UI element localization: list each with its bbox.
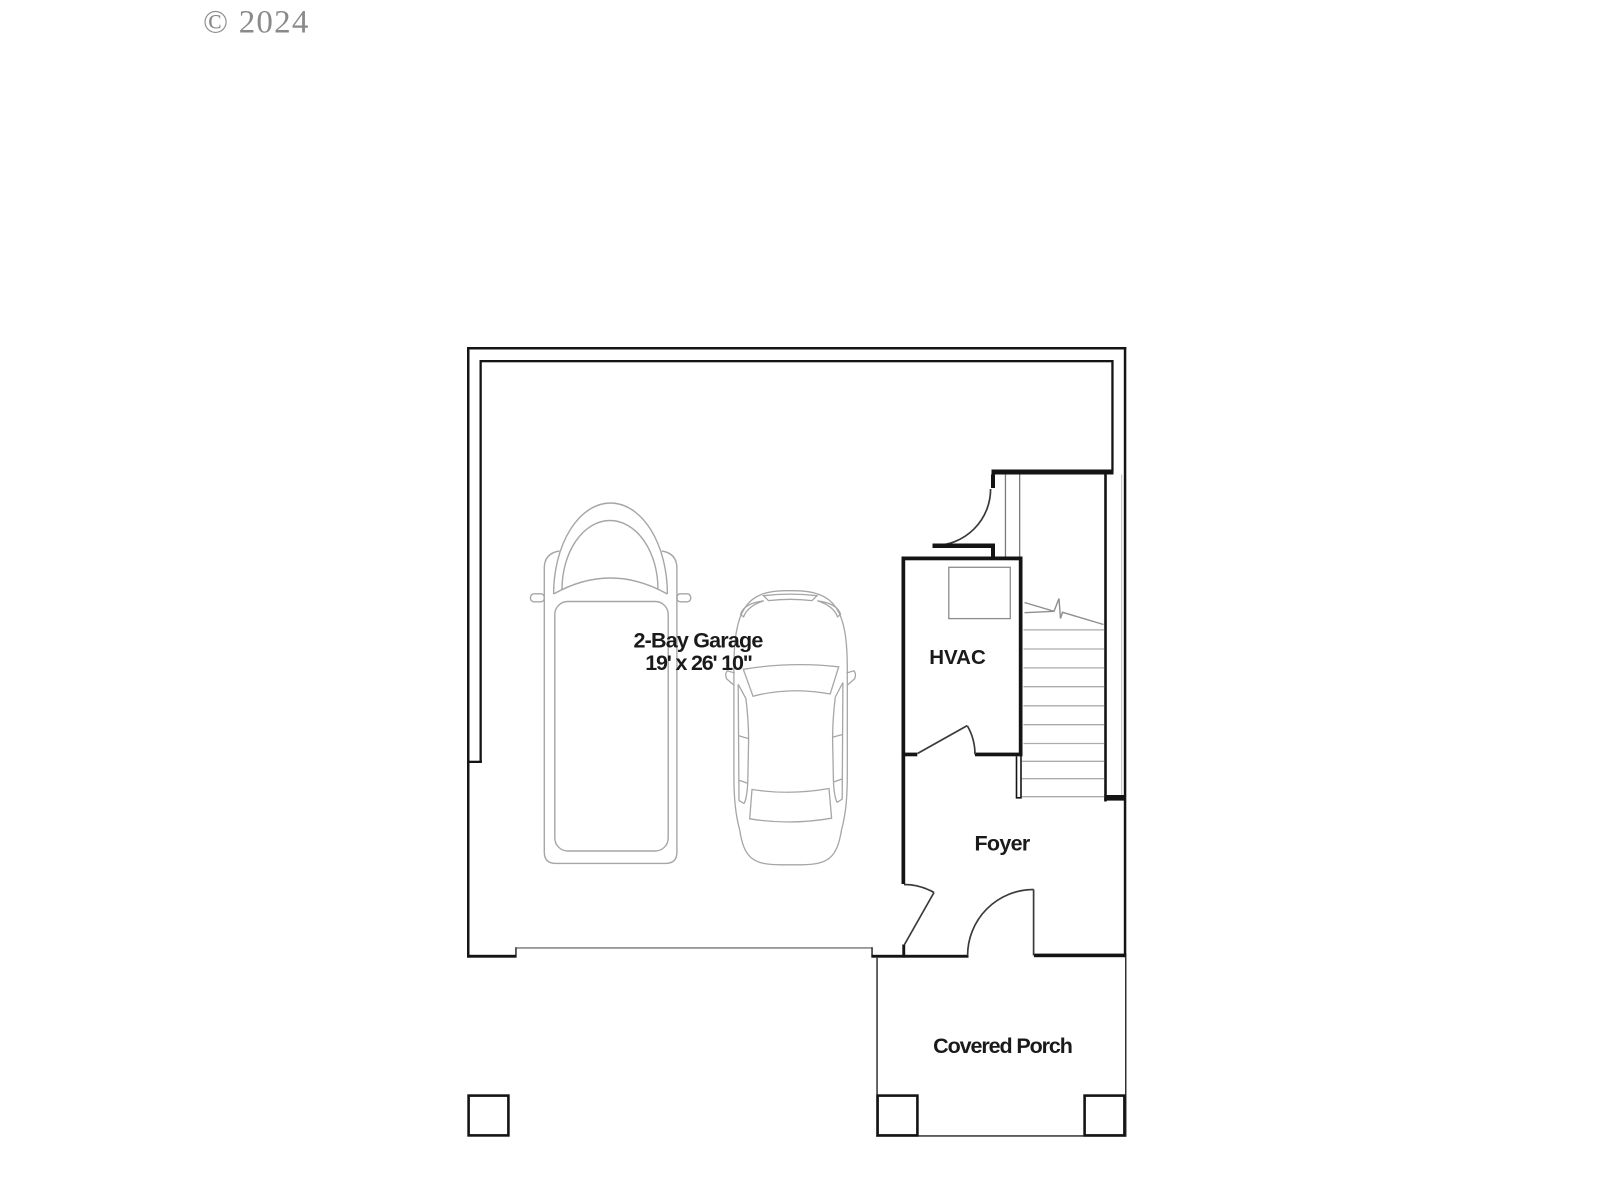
svg-text:2-Bay Garage: 2-Bay Garage bbox=[633, 628, 763, 652]
svg-text:Covered Porch: Covered Porch bbox=[933, 1034, 1072, 1058]
svg-text:HVAC: HVAC bbox=[929, 646, 986, 669]
svg-text:19' x 26' 10": 19' x 26' 10" bbox=[645, 651, 751, 675]
svg-text:© 2024: © 2024 bbox=[203, 5, 310, 41]
svg-text:Foyer: Foyer bbox=[974, 831, 1030, 855]
